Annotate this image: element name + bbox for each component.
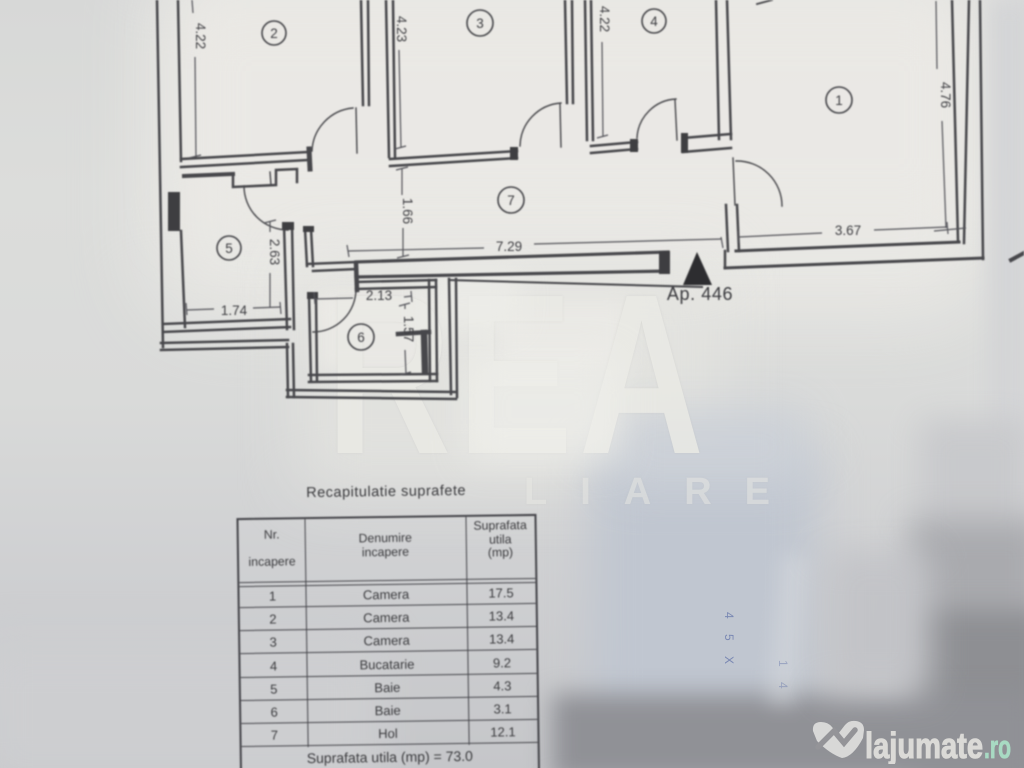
svg-text:1: 1 (835, 93, 843, 108)
svg-text:1.57: 1.57 (401, 316, 416, 342)
svg-text:3: 3 (476, 16, 484, 31)
svg-text:2: 2 (270, 26, 278, 41)
svg-text:3.67: 3.67 (835, 223, 861, 238)
svg-text:4.22: 4.22 (597, 6, 612, 32)
svg-text:4.76: 4.76 (938, 82, 953, 108)
svg-text:7: 7 (507, 193, 515, 208)
svg-text:1.74: 1.74 (221, 303, 248, 318)
svg-text:4: 4 (650, 14, 658, 29)
svg-text:Ap. 446: Ap. 446 (667, 284, 733, 304)
svg-text:.ro: .ro (984, 729, 1011, 764)
svg-text:5: 5 (225, 241, 233, 256)
svg-text:4.23: 4.23 (394, 16, 409, 42)
svg-text:2.13: 2.13 (366, 288, 392, 303)
svg-text:4.22: 4.22 (193, 23, 208, 49)
svg-text:1.66: 1.66 (400, 198, 415, 224)
svg-text:7.29: 7.29 (496, 239, 522, 254)
svg-text:6: 6 (357, 330, 365, 345)
svg-text:2.63: 2.63 (267, 239, 282, 265)
svg-text:lajumate: lajumate (865, 725, 983, 764)
